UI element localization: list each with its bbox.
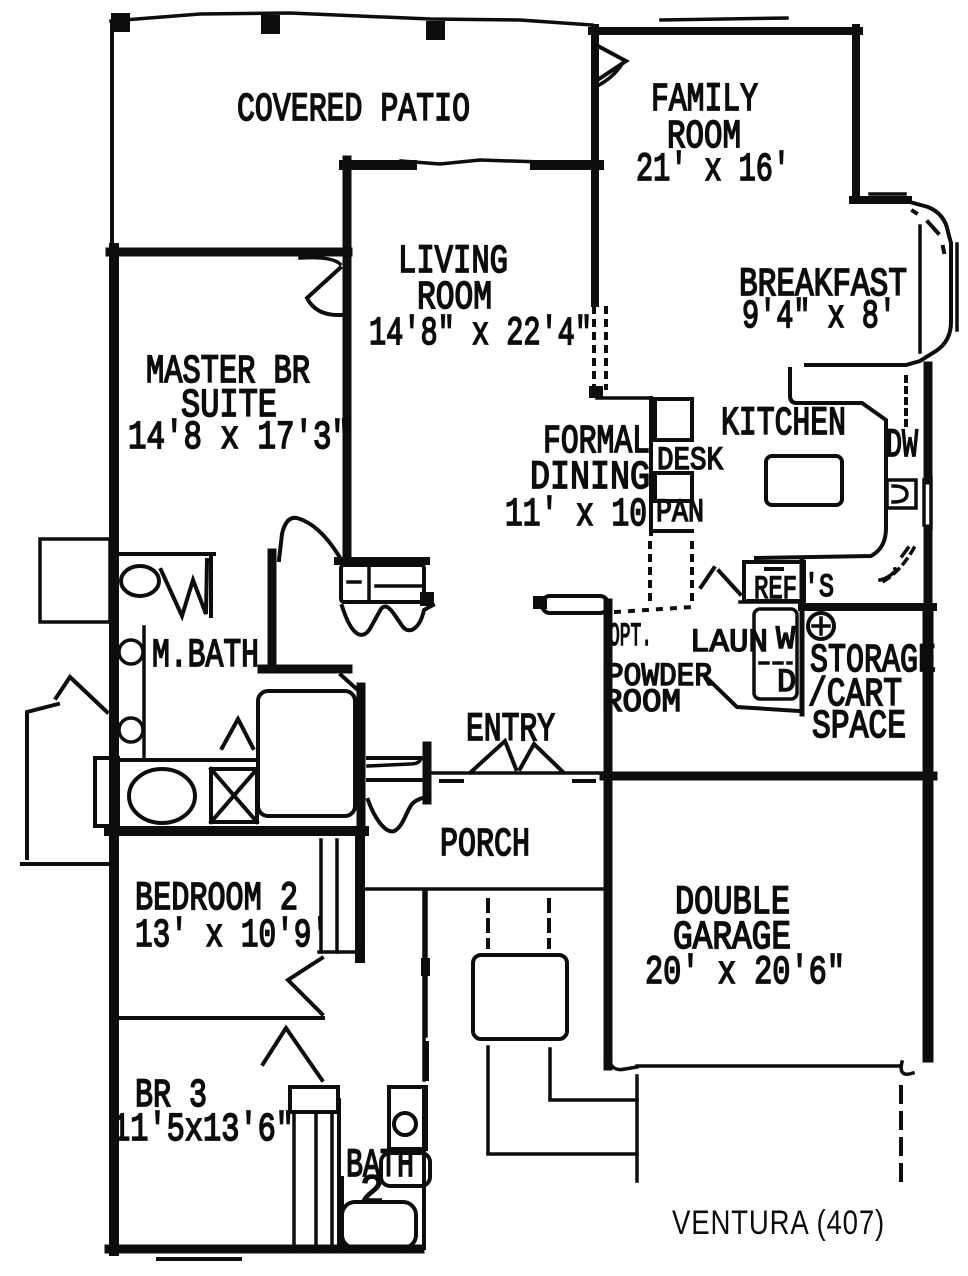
svg-text:DESK: DESK	[657, 442, 724, 479]
svg-text:13' x 10'9': 13' x 10'9'	[135, 914, 329, 959]
svg-text:ENTRY: ENTRY	[466, 708, 555, 753]
svg-text:W: W	[776, 621, 796, 658]
svg-text:11'5x13'6": 11'5x13'6"	[112, 1108, 294, 1153]
svg-text:COVERED PATIO: COVERED PATIO	[237, 88, 470, 133]
svg-text:PORCH: PORCH	[440, 823, 530, 868]
svg-text:9'4" x 8': 9'4" x 8'	[742, 295, 896, 340]
svg-text:21' x 16': 21' x 16'	[636, 148, 790, 193]
svg-text:20' x 20'6": 20' x 20'6"	[645, 951, 845, 996]
svg-text:14'8 x 17'3": 14'8 x 17'3"	[128, 416, 350, 461]
svg-text:REF: REF	[754, 571, 797, 608]
svg-text:D: D	[777, 664, 796, 701]
svg-text:11' x 10: 11' x 10	[505, 493, 647, 538]
svg-text:KITCHEN: KITCHEN	[721, 402, 846, 447]
svg-text:DW: DW	[886, 424, 918, 469]
svg-text:SPACE: SPACE	[812, 705, 906, 750]
svg-text:'S: 'S	[804, 569, 834, 606]
svg-text:LAUN: LAUN	[690, 624, 768, 661]
svg-text:ROOM: ROOM	[603, 684, 681, 721]
svg-text:PAN: PAN	[656, 494, 704, 531]
svg-text:2: 2	[360, 1170, 384, 1215]
svg-text:OPT.: OPT.	[609, 618, 652, 655]
svg-text:14'8" x 22'4": 14'8" x 22'4"	[369, 312, 592, 357]
svg-text:M.BATH: M.BATH	[152, 634, 259, 679]
svg-text:VENTURA (407): VENTURA (407)	[672, 1204, 885, 1242]
